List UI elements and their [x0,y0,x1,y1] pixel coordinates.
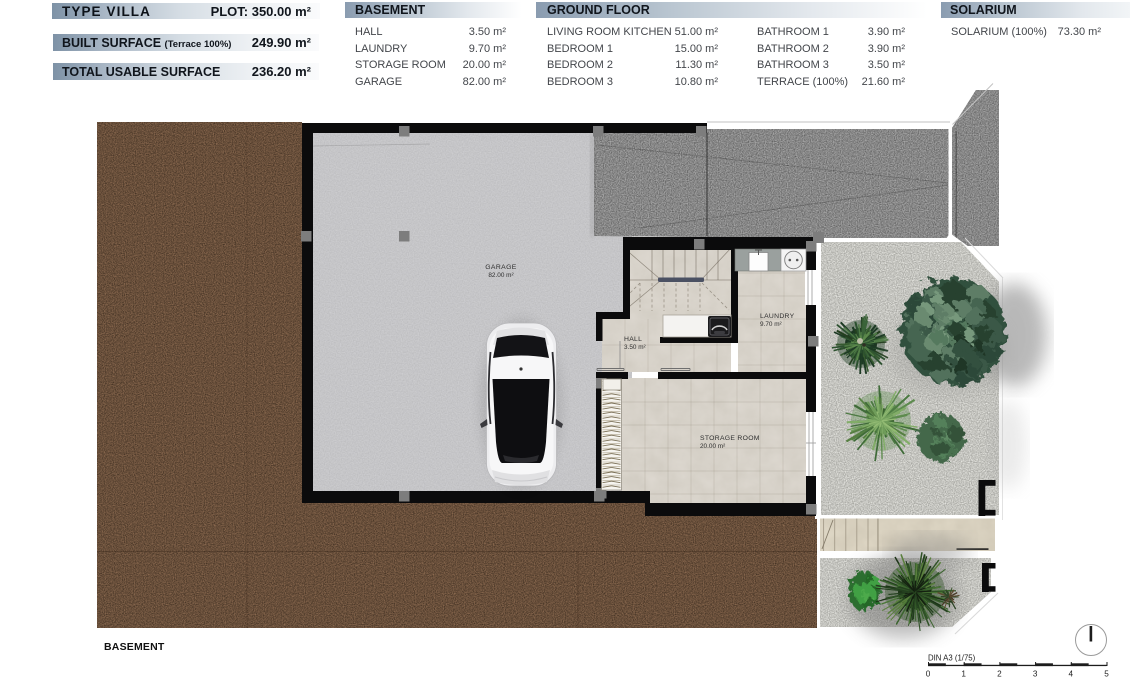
svg-text:HALL: HALL [624,336,642,343]
svg-text:20.00 m²: 20.00 m² [700,443,725,450]
svg-text:3: 3 [1033,670,1038,678]
svg-text:STORAGE ROOM: STORAGE ROOM [700,435,760,442]
svg-text:4: 4 [1069,670,1074,678]
svg-text:9.70 m²: 9.70 m² [760,321,782,328]
svg-text:3.50 m²: 3.50 m² [624,344,646,351]
svg-text:0: 0 [926,670,931,678]
svg-text:2: 2 [997,670,1002,678]
svg-text:5: 5 [1104,670,1109,678]
svg-text:82.00 m²: 82.00 m² [488,272,513,279]
svg-text:1: 1 [961,670,966,678]
svg-text:LAUNDRY: LAUNDRY [760,313,795,320]
svg-text:GARAGE: GARAGE [485,264,517,271]
svg-text:DIN A3 (1/75): DIN A3 (1/75) [928,654,976,663]
